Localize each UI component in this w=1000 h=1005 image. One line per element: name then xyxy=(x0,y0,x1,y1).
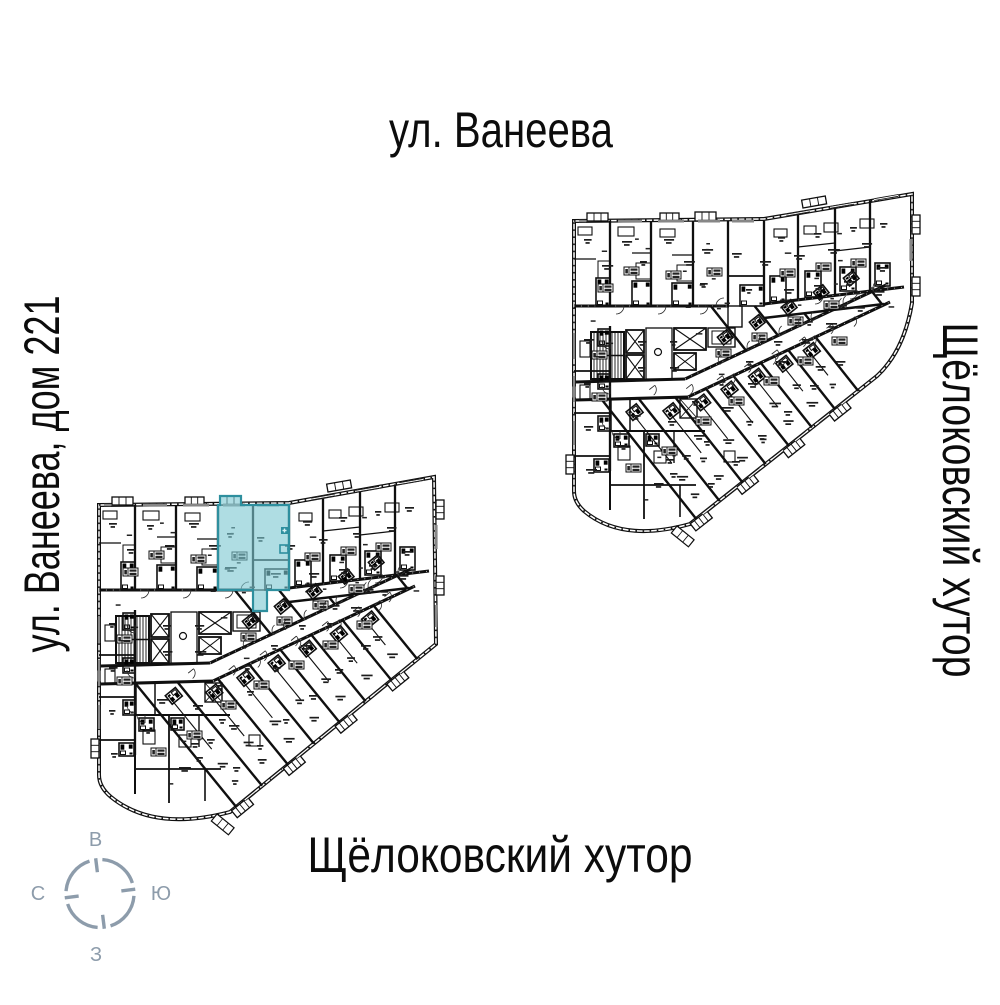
svg-text:В: В xyxy=(89,829,102,851)
svg-text:С: С xyxy=(31,883,45,905)
svg-text:ул. Ванеева: ул. Ванеева xyxy=(389,102,613,158)
svg-text:Щёлоковский хутор: Щёлоковский хутор xyxy=(932,323,988,678)
svg-text:З: З xyxy=(90,944,102,966)
svg-text:ул. Ванеева, дом 221: ул. Ванеева, дом 221 xyxy=(14,296,70,653)
svg-text:Щёлоковский хутор: Щёлоковский хутор xyxy=(308,827,693,883)
svg-text:Ю: Ю xyxy=(151,883,171,905)
